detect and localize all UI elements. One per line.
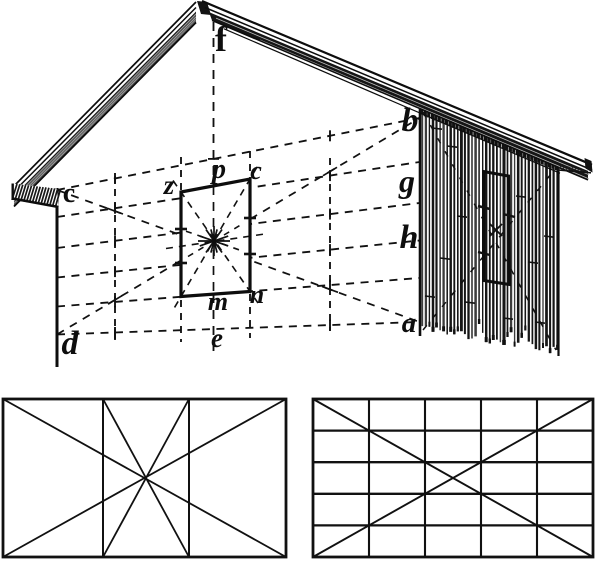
svg-text:g: g — [398, 163, 415, 199]
svg-text:z: z — [163, 170, 175, 200]
svg-text:d: d — [62, 325, 80, 362]
svg-text:n: n — [250, 280, 264, 309]
svg-text:a: a — [402, 307, 417, 339]
svg-text:f: f — [215, 19, 228, 59]
svg-text:m: m — [208, 287, 228, 316]
svg-text:e: e — [211, 323, 223, 353]
svg-text:c: c — [250, 156, 262, 185]
svg-text:b: b — [402, 102, 419, 139]
svg-text:h: h — [400, 219, 419, 256]
svg-text:p: p — [210, 154, 226, 185]
svg-text:c: c — [63, 178, 75, 209]
